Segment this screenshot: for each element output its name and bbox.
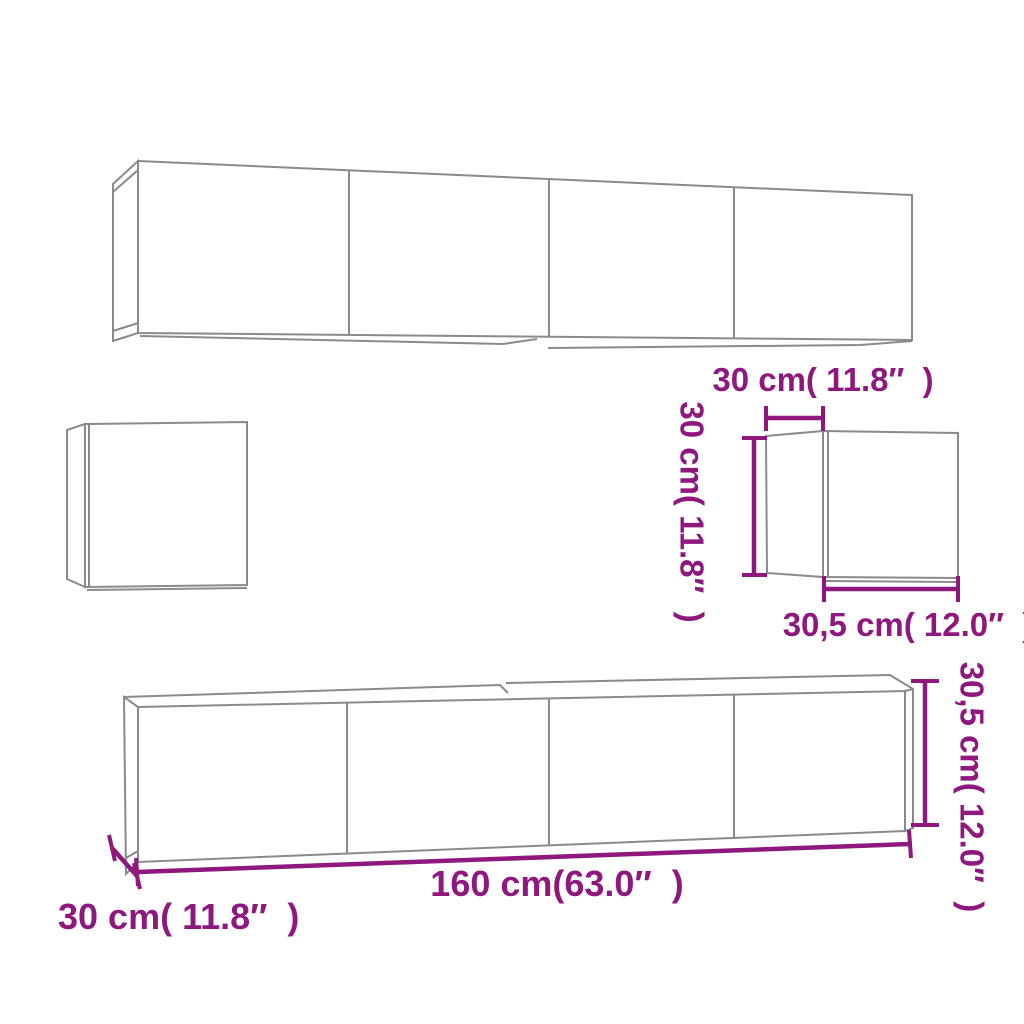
cube-cabinet-bottom-sliver [825,581,959,582]
square-cabinet-left-face [67,424,85,587]
cabinet-width-label: 160 cm(63.0″ ) [430,866,683,902]
top-cabinet-front-face [138,161,912,340]
bottom-cabinet-top-back-edge-left [124,685,508,697]
square-cabinet-bottom-sliver [87,588,247,590]
bottom-cabinet-left-face [124,697,138,874]
cube-width-label: 30 cm( 11.8″ ) [712,363,933,396]
cube-cabinet-left-face [766,431,823,577]
square-cabinet-drawing [67,422,247,590]
cabinet-depth-label: 30 cm( 11.8″ ) [58,899,299,935]
bottom-cabinet-drawing [124,675,913,874]
bottom-cabinet-right-face [905,689,913,831]
cube-height-label: 30 cm( 11.8″ ) [676,401,709,622]
cube-depth-label: 30,5 cm( 12.0″ ) [783,608,1024,641]
cube-cabinet-drawing [766,431,959,582]
cabinet-height-label: 30,5 cm( 12.0″ ) [956,662,989,913]
top-cabinet-underside-left [140,336,537,344]
top-cabinet-underside-right [548,341,912,348]
product-dimension-diagram: 30 cm( 11.8″ ) 30 cm( 11.8″ ) 30,5 cm( 1… [0,0,1024,1024]
cabinet-width-tick-right [909,830,911,858]
cube-cabinet-front-face [823,431,958,578]
square-cabinet-front-face [85,422,247,587]
bottom-cabinet-top-back-edge-right [506,675,913,689]
bottom-cabinet-front-face [138,691,905,862]
top-cabinet-drawing [113,161,912,348]
